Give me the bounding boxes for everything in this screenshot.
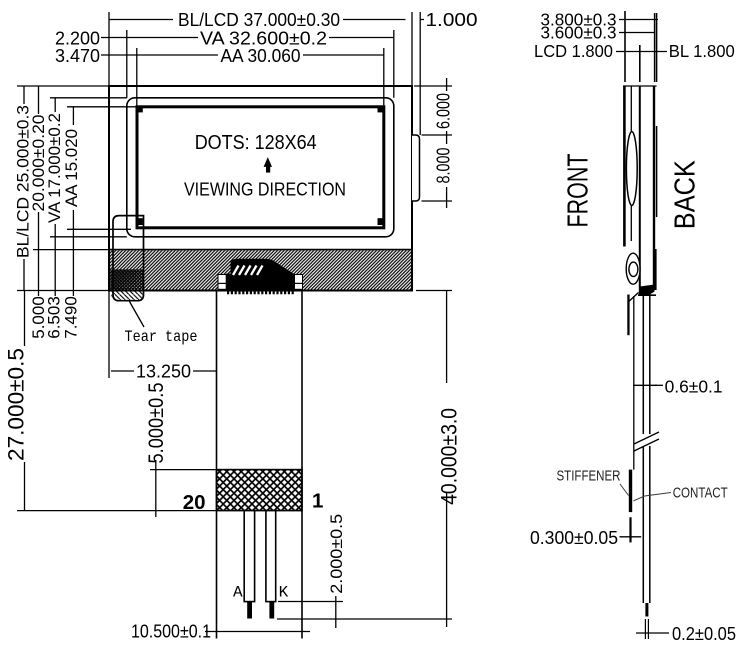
svg-text:Tear tape: Tear tape (125, 328, 198, 346)
svg-text:LCD 1.800: LCD 1.800 (534, 41, 613, 61)
svg-text:13.250: 13.250 (136, 362, 191, 382)
svg-text:STIFFENER: STIFFENER (557, 468, 621, 485)
svg-text:5.000±0.5: 5.000±0.5 (145, 383, 168, 464)
svg-text:VA 17.000±0.2: VA 17.000±0.2 (46, 113, 64, 223)
svg-text:1.000: 1.000 (426, 10, 478, 30)
svg-text:1: 1 (312, 490, 323, 513)
svg-text:10.500±0.1: 10.500±0.1 (131, 622, 211, 642)
svg-text:AA 15.020: AA 15.020 (63, 129, 81, 207)
svg-text:BL 1.800: BL 1.800 (669, 41, 735, 61)
svg-text:0.6±0.1: 0.6±0.1 (665, 377, 723, 397)
svg-text:BL/LCD 37.000±0.30: BL/LCD 37.000±0.30 (178, 10, 340, 30)
svg-text:3.470: 3.470 (55, 46, 100, 66)
svg-text:AA 30.060: AA 30.060 (221, 46, 301, 66)
svg-text:CONTACT: CONTACT (673, 485, 728, 502)
svg-text:6.000: 6.000 (434, 93, 454, 129)
svg-text:0.2±0.05: 0.2±0.05 (672, 624, 736, 644)
svg-text:FRONT: FRONT (563, 153, 595, 227)
svg-text:0.300±0.05: 0.300±0.05 (530, 528, 618, 548)
svg-text:A: A (233, 584, 243, 602)
svg-text:8.000: 8.000 (434, 148, 454, 184)
svg-text:40.000±3.0: 40.000±3.0 (437, 408, 462, 505)
svg-text:DOTS: 128X64: DOTS: 128X64 (195, 132, 317, 154)
svg-text:BACK: BACK (670, 160, 702, 230)
svg-text:K: K (279, 584, 289, 602)
svg-text:7.490: 7.490 (62, 296, 81, 339)
svg-text:2.000±0.5: 2.000±0.5 (327, 514, 346, 594)
svg-text:VIEWING DIRECTION: VIEWING DIRECTION (184, 179, 346, 200)
svg-text:27.000±0.5: 27.000±0.5 (4, 348, 29, 461)
svg-text:3.600±0.3: 3.600±0.3 (541, 23, 617, 43)
